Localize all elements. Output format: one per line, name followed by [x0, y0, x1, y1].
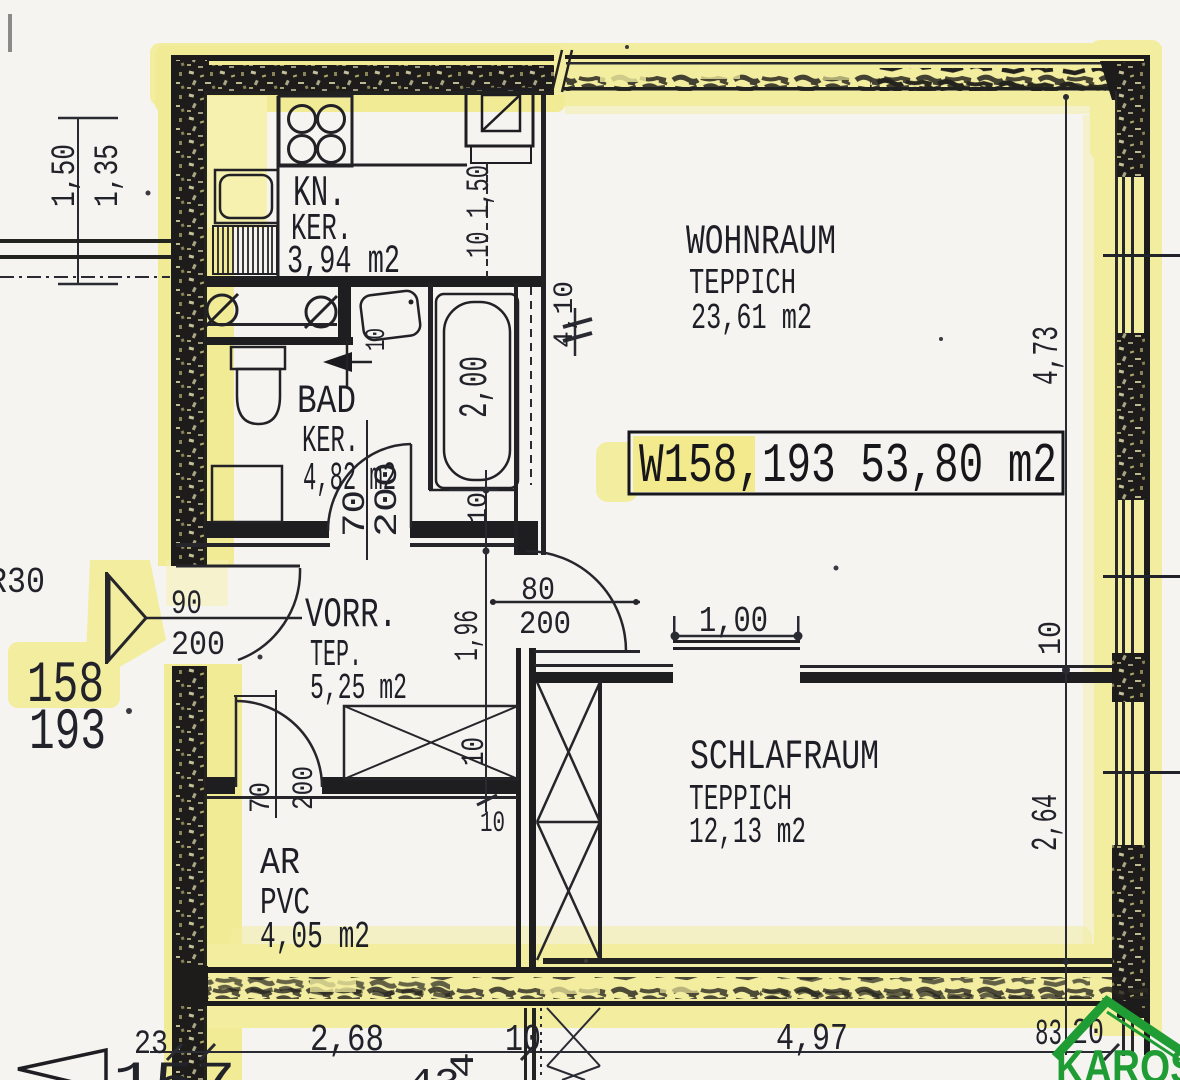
svg-text:80: 80: [521, 572, 555, 609]
svg-text:12,13 m2: 12,13 m2: [689, 812, 806, 853]
svg-text:W158,193 53,80 m2: W158,193 53,80 m2: [639, 434, 1057, 498]
svg-text:10: 10: [1033, 621, 1070, 655]
svg-text:10 1,50: 10 1,50: [461, 165, 498, 258]
svg-text:SCHLAFRAUM: SCHLAFRAUM: [690, 733, 879, 781]
svg-text:4,73: 4,73: [1027, 326, 1068, 385]
svg-text:74: 74: [446, 1052, 484, 1080]
svg-text:5,25 m2: 5,25 m2: [310, 668, 407, 709]
svg-text:1,50: 1,50: [47, 144, 85, 207]
svg-text:200: 200: [519, 606, 571, 643]
svg-text:10: 10: [480, 807, 505, 841]
svg-text:VORR.: VORR.: [305, 591, 397, 639]
svg-text:3,94 m2: 3,94 m2: [287, 240, 400, 285]
svg-text:4,97: 4,97: [776, 1018, 848, 1061]
svg-text:10: 10: [464, 492, 495, 524]
svg-text:70: 70: [245, 782, 279, 813]
svg-text:200: 200: [288, 766, 322, 810]
svg-text:193: 193: [29, 701, 106, 766]
svg-text:2,64: 2,64: [1026, 794, 1067, 851]
svg-text:1,96: 1,96: [450, 610, 488, 661]
svg-text:WOHNRAUM: WOHNRAUM: [686, 218, 836, 266]
svg-text:1,00: 1,00: [699, 601, 768, 642]
svg-text:R30: R30: [0, 562, 45, 603]
svg-text:2,68: 2,68: [310, 1019, 384, 1062]
svg-text:90: 90: [171, 586, 202, 624]
svg-text:1,35: 1,35: [90, 144, 128, 207]
svg-text:2,00: 2,00: [454, 356, 499, 418]
svg-text:4,05 m2: 4,05 m2: [260, 916, 370, 959]
svg-text:10: 10: [505, 1019, 541, 1062]
svg-text:AR: AR: [260, 842, 300, 885]
svg-text:KAROS: KAROS: [1056, 1040, 1180, 1080]
svg-text:10: 10: [456, 737, 493, 766]
svg-text:200: 200: [369, 462, 406, 537]
svg-text:4,10: 4,10: [550, 281, 581, 348]
svg-text:157: 157: [113, 1054, 236, 1080]
svg-text:23,61 m2: 23,61 m2: [691, 298, 812, 339]
svg-text:200: 200: [171, 627, 225, 665]
svg-text:BAD: BAD: [297, 380, 356, 425]
svg-text:10: 10: [362, 328, 393, 351]
